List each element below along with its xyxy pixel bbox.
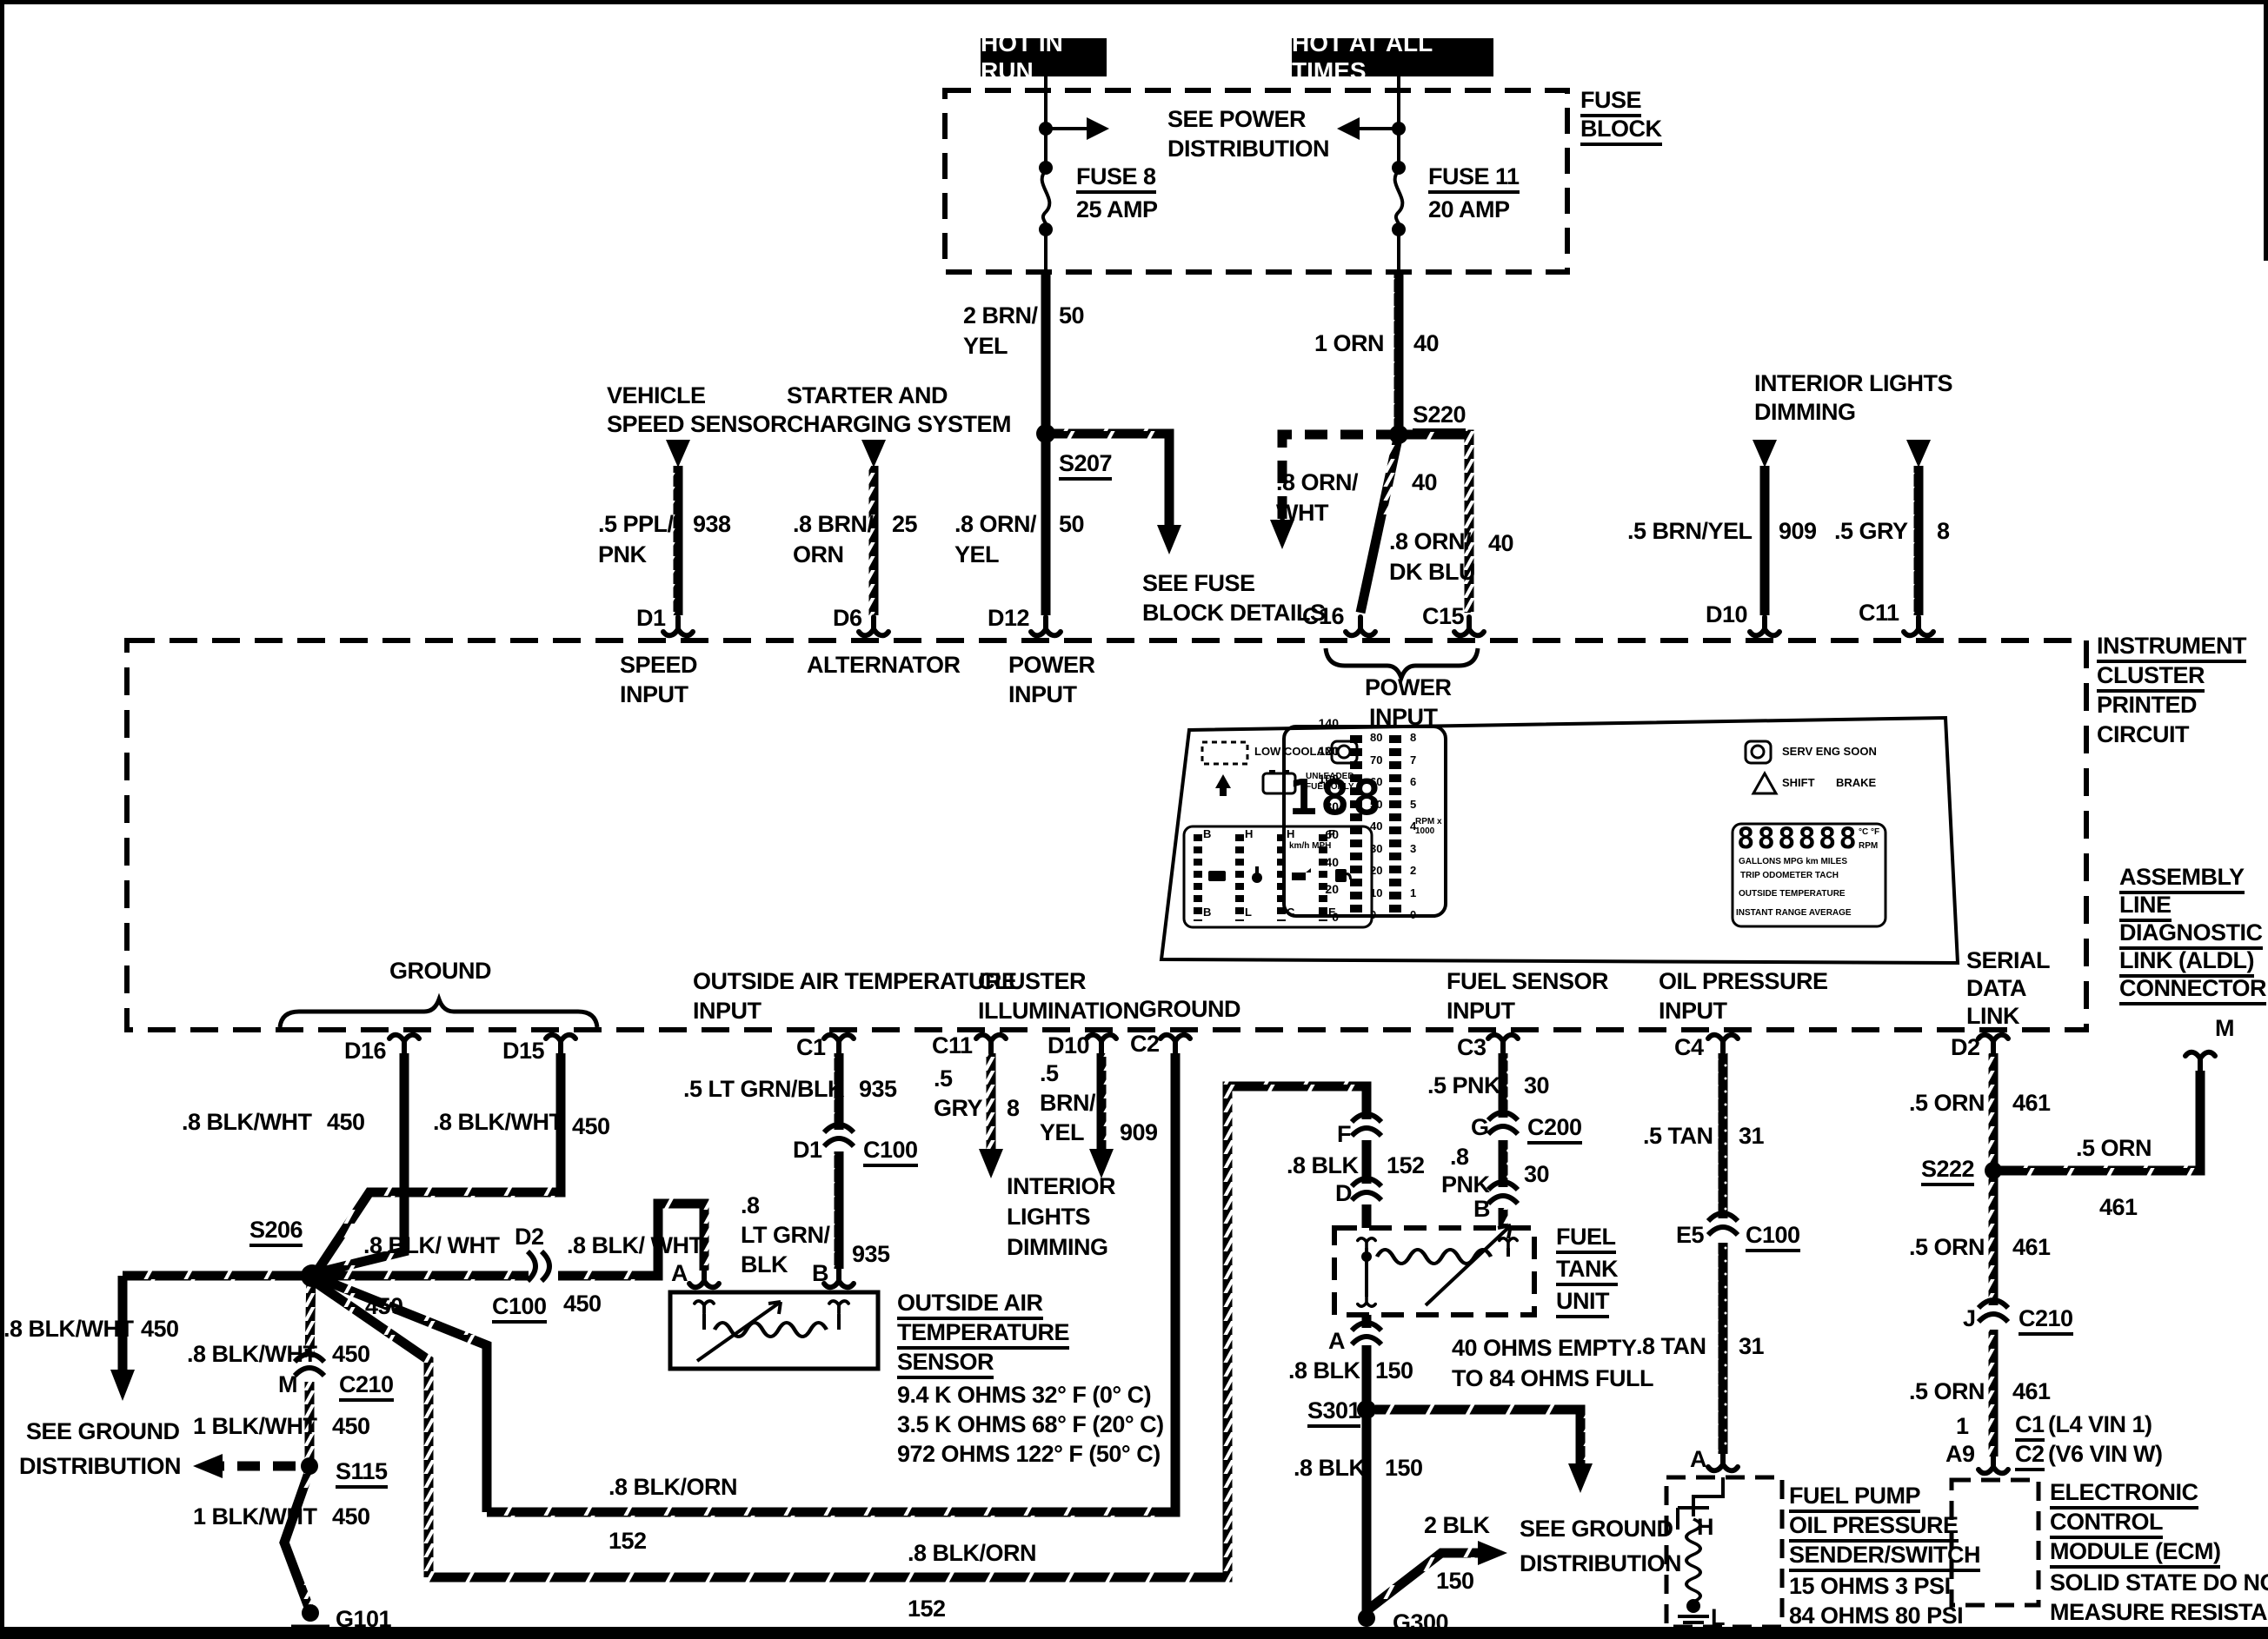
shift-label: SHIFT [1782, 777, 1815, 790]
odo-row1: GALLONS MPG km MILES [1739, 857, 1847, 866]
wire-5by-b1: .5 [1040, 1060, 1059, 1086]
oat-sensor-4: 9.4 K OHMS 32° F (0° C) [897, 1382, 1151, 1408]
power-input-brace [1326, 648, 1478, 678]
splice-s222 [1985, 1162, 2002, 1179]
hot-at-all-times-banner: HOT AT ALL TIMES [1292, 38, 1493, 76]
wire-8ornyel-2: YEL [954, 541, 999, 567]
oat-input-1: OUTSIDE AIR TEMPERATURE [693, 968, 1017, 994]
wire-1blk-b-num: 450 [332, 1503, 370, 1530]
conn-d16: D16 [344, 1038, 386, 1064]
power-input-2a: POWER [1365, 674, 1452, 700]
conn-c15: C15 [1422, 603, 1464, 629]
rpm-x1000-label: RPM x 1000 [1415, 817, 1447, 836]
ecm-4: SOLID STATE DO NOT [2050, 1569, 2268, 1596]
wire-5gry-b2: GRY [934, 1095, 982, 1121]
serv-eng-soon-label: SERV ENG SOON [1782, 746, 1877, 759]
kmh-scale-6: 20 [1300, 882, 1339, 896]
kmh-scale-5: 40 [1300, 855, 1339, 869]
wire-8tan: .8 TAN [1636, 1333, 1706, 1359]
term-e5: E5 [1676, 1222, 1704, 1248]
alternator-label: ALTERNATOR [807, 652, 961, 678]
speed-input-2: INPUT [620, 681, 688, 707]
oat-input-2: INPUT [693, 998, 762, 1024]
wire-1blk-a: 1 BLK/WHT [193, 1413, 316, 1439]
wire-5orn-m-num: 461 [2099, 1194, 2138, 1220]
wire-5orn-c: .5 ORN [1909, 1378, 1985, 1404]
wire-8orndkblu-1: .8 ORN/ [1389, 528, 1471, 554]
wire-450-d15-num: 450 [572, 1113, 610, 1139]
wire-2blk-num: 150 [1436, 1568, 1474, 1594]
wire-blkorn-2: .8 BLK/ORN [908, 1540, 1036, 1566]
oil-pressure-input-1: OIL PRESSURE [1659, 968, 1828, 994]
see-power-2: DISTRIBUTION [1167, 136, 1329, 162]
conn-d2a: D2 [515, 1224, 544, 1250]
sdl-2: DATA [1966, 975, 2026, 1001]
kmh-scale-0: 140 [1300, 716, 1339, 730]
splice-s207-label: S207 [1059, 450, 1112, 481]
cluster-illum-1: CLUSTER [978, 968, 1086, 994]
arrow-left-icon [193, 1454, 223, 1478]
fuse11-label: FUSE 11 [1428, 163, 1520, 194]
see-ground-1b: DISTRIBUTION [19, 1453, 181, 1479]
arrow-left-icon [1337, 117, 1360, 140]
wire-blkorn-2-num: 152 [908, 1596, 946, 1622]
wire-8ornwht-2: WHT [1276, 500, 1328, 526]
mph-scale-2: 60 [1370, 775, 1382, 788]
wire-1blk-a-num: 450 [332, 1413, 370, 1439]
conn-d2-sdl: D2 [1951, 1034, 1980, 1060]
ecm-c2: C2 [2015, 1441, 2045, 1471]
fuel-pump-1: FUEL PUMP [1789, 1483, 1920, 1513]
aldl-5: CONNECTOR [2119, 975, 2266, 1005]
see-fuse-1: SEE FUSE [1142, 570, 1255, 596]
arrow-down-icon [1906, 440, 1931, 468]
aldl-1: ASSEMBLY [2119, 864, 2245, 894]
speedo-units: km/h MPH [1289, 841, 1331, 851]
ecm-c1-suffix: (L4 VIN 1) [2048, 1411, 2152, 1437]
wire-5pplpnk-num: 938 [693, 511, 731, 537]
wire-5gry-b1: .5 [934, 1065, 953, 1092]
wire-8orndkblu-num: 40 [1488, 530, 1513, 556]
ground-brace [280, 999, 597, 1027]
wire-8brnorn-2: ORN [793, 541, 844, 567]
shift-icon [1753, 773, 1776, 793]
wire-8pnk-num: 30 [1524, 1161, 1549, 1187]
wire-5by-b3: YEL [1040, 1119, 1084, 1145]
oat-sensor-3: SENSOR [897, 1349, 994, 1379]
instr-cluster-1: INSTRUMENT [2097, 633, 2246, 663]
oat-sensor-5: 3.5 K OHMS 68° F (20° C) [897, 1411, 1164, 1437]
wire-5by-b-num: 909 [1120, 1119, 1158, 1145]
conn-c100a: C100 [492, 1293, 547, 1324]
arrow-down-icon [979, 1149, 1003, 1178]
mph-scale-0: 80 [1370, 731, 1382, 744]
wire-5pplpnk-1: .5 PPL/ [598, 511, 674, 537]
ecm-3: MODULE (ECM) [2050, 1538, 2220, 1569]
wire-935b-num: 935 [852, 1241, 890, 1267]
wire-5brnyel-top-num: 909 [1779, 518, 1817, 544]
term-m-aldl: M [2215, 1015, 2234, 1041]
wire-8brnorn-1: .8 BRN/ [793, 511, 874, 537]
odo-digits: 888888 [1737, 822, 1859, 855]
mph-scale-3: 50 [1370, 798, 1382, 811]
arrow-down-icon [1157, 525, 1181, 554]
wire-8ornyel-1: .8 ORN/ [954, 511, 1036, 537]
wire-5orn-a: .5 ORN [1909, 1090, 1985, 1116]
fuel-gauge-icon [1335, 869, 1347, 882]
wire-450-left: .8 BLK/WHT [3, 1316, 134, 1342]
ftu-label-3: UNIT [1556, 1288, 1609, 1318]
ohms-2: TO 84 OHMS FULL [1452, 1365, 1653, 1391]
arrow-right-icon [1087, 117, 1109, 140]
wire-450-d16: .8 BLK/WHT [182, 1109, 312, 1135]
tach-scale-6: 2 [1410, 864, 1416, 877]
ground-label: GROUND [389, 958, 491, 984]
aldl-2: LINE [2119, 892, 2172, 922]
wire-450-d16-num: 450 [327, 1109, 365, 1135]
wiring-diagram-page: HOT IN RUN HOT AT ALL TIMES FUSE BLOCK S… [0, 0, 2268, 1639]
term-f: F [1337, 1121, 1351, 1147]
gauge-letters-top-0: B [1203, 827, 1211, 840]
term-1: 1 [1956, 1413, 1969, 1439]
fuel-pump-2: OIL PRESSURE [1789, 1512, 1959, 1543]
see-power-1: SEE POWER [1167, 106, 1306, 132]
wire-935b-2: LT GRN/ [741, 1222, 829, 1248]
oil-gauge-icon [1292, 868, 1311, 880]
mph-scale-6: 20 [1370, 864, 1382, 877]
conn-c16: C16 [1302, 603, 1344, 629]
ftu-label-1: FUEL [1556, 1224, 1616, 1254]
mph-scale-5: 30 [1370, 842, 1382, 855]
vss-label-1: VEHICLE [607, 382, 706, 408]
conn-c210a: C210 [339, 1371, 394, 1402]
wire-8ornwht-num: 40 [1412, 469, 1437, 495]
arrow-down-icon [1568, 1463, 1593, 1493]
power-input-1a: POWER [1008, 652, 1095, 678]
arrow-down-icon [666, 440, 690, 468]
see-ground-2a: SEE GROUND [1520, 1516, 1673, 1542]
term-b-ftu: B [1473, 1196, 1490, 1222]
conn-c100b: C100 [863, 1137, 918, 1167]
wire-2blk: 2 BLK [1424, 1512, 1490, 1538]
starter-label-2: CHARGING SYSTEM [787, 411, 1011, 437]
rpm-unit: RPM [1859, 841, 1878, 851]
tach-scale-7: 1 [1410, 886, 1416, 899]
arrow-down-icon [861, 440, 886, 468]
wire-5pplpnk-2: PNK [598, 541, 647, 567]
wire-2brnyel-1: 2 BRN/ [963, 302, 1038, 328]
kmh-scale-3: 80 [1300, 800, 1339, 813]
mph-scale-7: 10 [1370, 886, 1382, 899]
brake-label: BRAKE [1836, 777, 1876, 790]
kmh-scale-2: 100 [1300, 772, 1339, 786]
fuse8-amp: 25 AMP [1076, 196, 1158, 222]
instr-cluster-3: PRINTED [2097, 692, 2197, 718]
conn-c11-top: C11 [1859, 600, 1899, 626]
conn-c200: C200 [1527, 1114, 1582, 1145]
term-m: M [278, 1371, 297, 1397]
odo-row2: TRIP ODOMETER TACH [1740, 871, 1839, 880]
fuel-pump-3: SENDER/SWITCH [1789, 1542, 1980, 1572]
wire-450-m: .8 BLK/WHT [187, 1341, 317, 1367]
ground2-label: GROUND [1139, 996, 1240, 1022]
fuel-pump-4: 15 OHMS 3 PSI [1789, 1573, 1951, 1599]
term-h: H [1697, 1514, 1713, 1540]
wire-5gry-top-num: 8 [1937, 518, 1950, 544]
oat-sensor-1: OUTSIDE AIR [897, 1290, 1043, 1320]
battery-gauge-icon [1208, 871, 1226, 881]
term-l: L [1711, 1604, 1725, 1630]
wire-450-dot-num: 450 [365, 1293, 403, 1319]
wire-8pnk-2: PNK [1441, 1171, 1490, 1198]
term-b-oat: B [812, 1260, 828, 1286]
sdl-3: LINK [1966, 1003, 2019, 1029]
wire-8blk150a: .8 BLK [1288, 1357, 1360, 1384]
ecm-c2-suffix: (V6 VIN W) [2048, 1441, 2163, 1467]
term-a-fp: A [1690, 1446, 1706, 1472]
wire-5by-b2: BRN/ [1040, 1090, 1095, 1116]
gauge-letters-top-1: H [1245, 827, 1253, 840]
gauge-letters-top-3: F [1328, 827, 1335, 840]
fuse-block-label-1: FUSE [1580, 87, 1641, 117]
wire-935b-1: .8 [741, 1192, 760, 1218]
wire-8ornwht-1: .8 ORN/ [1276, 469, 1358, 495]
wire-935b-3: BLK [741, 1251, 788, 1277]
see-ground-1a: SEE GROUND [26, 1418, 180, 1444]
gauge-letters-top-2: H [1287, 827, 1294, 840]
mph-scale-8: 0 [1370, 908, 1376, 921]
conn-c4: C4 [1674, 1034, 1704, 1060]
wire-1blk-b: 1 BLK/WHT [193, 1503, 316, 1530]
wire-1orn: 1 ORN [1314, 330, 1384, 356]
wire-2brnyel-2: YEL [963, 333, 1008, 359]
wire-5gry-b-num: 8 [1007, 1095, 1020, 1121]
wire-8brnorn-num: 25 [892, 511, 917, 537]
arrow-down-icon [1753, 440, 1777, 468]
conn-d1: D1 [636, 605, 666, 631]
splice-s207 [1036, 424, 1055, 443]
splice-s301-label: S301 [1307, 1397, 1360, 1428]
tach-scale-4: 4 [1410, 819, 1416, 833]
wire-5pnk: .5 PNK [1427, 1072, 1500, 1098]
conn-d10-top: D10 [1706, 601, 1747, 627]
splice-s206 [301, 1264, 323, 1287]
wire-450-m-num: 450 [332, 1341, 370, 1367]
arrow-right-icon [1478, 1541, 1507, 1565]
wire-5orn-a-num: 461 [2012, 1090, 2051, 1116]
low-coolant-box [1202, 742, 1247, 764]
tach-scale-3: 5 [1410, 798, 1416, 811]
wire-8pnk-1: .8 [1450, 1144, 1469, 1170]
ecm-2: CONTROL [2050, 1509, 2163, 1539]
wire-8blk150b-num: 150 [1385, 1455, 1423, 1481]
term-j: J [1963, 1305, 1976, 1331]
splice-s222-label: S222 [1921, 1156, 1974, 1186]
tach-scale-2: 6 [1410, 775, 1416, 788]
interior-lights-top-1: INTERIOR LIGHTS [1754, 370, 1952, 396]
wire-5tan: .5 TAN [1643, 1123, 1713, 1149]
ecm-5: MEASURE RESISTANCE [2050, 1599, 2268, 1625]
wire-5orn-b-num: 461 [2012, 1234, 2051, 1260]
conn-d1-c100: D1 [793, 1137, 822, 1163]
wire-5tan-num: 31 [1739, 1123, 1764, 1149]
cf-units: °C °F [1859, 827, 1879, 837]
mph-scale-1: 70 [1370, 753, 1382, 766]
ground-g300-label: G300 [1393, 1609, 1448, 1639]
splice-s206-label: S206 [249, 1217, 303, 1247]
wire-1orn-num: 40 [1413, 330, 1439, 356]
fuel-sensor-input-2: INPUT [1447, 998, 1515, 1024]
ftu-label-2: TANK [1556, 1256, 1618, 1286]
wire-450-s206r2: .8 BLK/ WHT [567, 1232, 703, 1258]
term-a9: A9 [1945, 1441, 1975, 1467]
tach-scale-0: 8 [1410, 731, 1416, 744]
wire-8orndkblu-2: DK BLU [1389, 559, 1475, 585]
aldl-3: DIAGNOSTIC [2119, 919, 2263, 950]
conn-c1: C1 [796, 1034, 826, 1060]
splice-s220 [1389, 425, 1408, 444]
cluster-illum-2: ILLUMINATION [978, 998, 1139, 1024]
conn-c2: C2 [1130, 1031, 1160, 1057]
wire-8blk150b: .8 BLK [1294, 1455, 1366, 1481]
arrow-down-icon [110, 1370, 135, 1401]
term-a-oat: A [671, 1260, 688, 1286]
interior-lights-top-2: DIMMING [1754, 399, 1855, 425]
wire-blkorn-1: .8 BLK/ORN [609, 1474, 737, 1500]
wire-8blk152-num: 152 [1387, 1152, 1425, 1178]
conn-d15: D15 [502, 1038, 544, 1064]
wire-8tan-num: 31 [1739, 1333, 1764, 1359]
wire-935a: .5 LT GRN/BLK [683, 1076, 844, 1102]
up-arrow-icon [1215, 774, 1231, 796]
conn-c11-bottom: C11 [932, 1032, 973, 1058]
wire-8ornyel-num: 50 [1059, 511, 1084, 537]
conn-d12: D12 [988, 605, 1029, 631]
gauge-letters-bottom-1: L [1245, 906, 1252, 919]
odo-row4: INSTANT RANGE AVERAGE [1736, 908, 1852, 918]
ecm-c1: C1 [2015, 1411, 2045, 1442]
fuel-sensor-input-1: FUEL SENSOR [1447, 968, 1608, 994]
conn-c3: C3 [1457, 1034, 1487, 1060]
gauge-letters-bottom-3: E [1328, 906, 1336, 919]
wire-2brnyel-num: 50 [1059, 302, 1084, 328]
wire-935a-num: 935 [859, 1076, 897, 1102]
wire-5orn-c-num: 461 [2012, 1378, 2051, 1404]
wire-5gry-top: .5 GRY [1834, 518, 1908, 544]
ecm-1: ELECTRONIC [2050, 1479, 2198, 1510]
tach-scale-1: 7 [1410, 753, 1416, 766]
hot-in-run-banner: HOT IN RUN [981, 38, 1107, 76]
mph-scale-4: 40 [1370, 819, 1382, 833]
aldl-4: LINK (ALDL) [2119, 947, 2254, 978]
instr-cluster-2: CLUSTER [2097, 662, 2205, 693]
outside-air-temp-sensor [670, 1292, 878, 1369]
splice-s115-label: S115 [336, 1458, 388, 1489]
see-fuse-2: BLOCK DETAILS [1142, 600, 1326, 626]
power-input-1b: INPUT [1008, 681, 1077, 707]
oat-sensor-6: 972 OHMS 122° F (50° C) [897, 1441, 1161, 1467]
fuel-tank-unit-internals [1358, 1225, 1517, 1306]
wire-450-left-num: 450 [141, 1316, 179, 1342]
term-g: G [1471, 1114, 1489, 1140]
wire-8blk152: .8 BLK [1287, 1152, 1359, 1178]
wire-blkorn-1-num: 152 [609, 1528, 647, 1554]
wire-5orn-m: .5 ORN [2076, 1135, 2152, 1161]
wire-450-s206r: .8 BLK/ WHT [363, 1232, 500, 1258]
conn-c210b: C210 [2019, 1305, 2073, 1336]
tach-scale-5: 3 [1410, 842, 1416, 855]
ground-g101-label: G101 [336, 1606, 391, 1636]
wire-5orn-b: .5 ORN [1909, 1234, 1985, 1260]
conn-d6: D6 [833, 605, 862, 631]
see-ground-2b: DISTRIBUTION [1520, 1550, 1681, 1576]
conn-d10-bottom: D10 [1048, 1032, 1089, 1058]
ohms-1: 40 OHMS EMPTY [1452, 1335, 1637, 1361]
starter-label-1: STARTER AND [787, 382, 948, 408]
conn-c100a-num: 450 [563, 1291, 602, 1317]
kmh-scale-1: 120 [1300, 744, 1339, 758]
gauge-letters-bottom-2: C [1287, 906, 1294, 919]
fuel-pump-5: 84 OHMS 80 PSI [1789, 1603, 1963, 1629]
wire-8blk150a-num: 150 [1375, 1357, 1413, 1384]
fuse8-label: FUSE 8 [1076, 163, 1156, 194]
conn-c100c: C100 [1746, 1222, 1800, 1252]
wire-5pnk-num: 30 [1524, 1072, 1549, 1098]
term-d: D [1335, 1180, 1352, 1206]
sdl-1: SERIAL [1966, 947, 2050, 973]
interior-lights-b3: DIMMING [1007, 1234, 1107, 1260]
instr-cluster-4: CIRCUIT [2097, 721, 2189, 747]
splice-s220-label: S220 [1413, 401, 1466, 432]
wire-5brnyel-top: .5 BRN/YEL [1627, 518, 1753, 544]
vss-label-2: SPEED SENSOR [607, 411, 787, 437]
interior-lights-b2: LIGHTS [1007, 1204, 1090, 1230]
oil-pressure-input-2: INPUT [1659, 998, 1727, 1024]
oat-sensor-2: TEMPERATURE [897, 1319, 1069, 1350]
splice-s115 [301, 1457, 318, 1475]
wire-450-d15: .8 BLK/WHT [433, 1109, 563, 1135]
power-input-2b: INPUT [1369, 704, 1438, 730]
fuse11-amp: 20 AMP [1428, 196, 1510, 222]
tach-scale-8: 0 [1410, 908, 1416, 921]
gauge-letters-bottom-0: B [1203, 906, 1211, 919]
odo-row3: OUTSIDE TEMPERATURE [1739, 889, 1846, 899]
term-a-ftu: A [1328, 1328, 1345, 1354]
speed-input-1: SPEED [620, 652, 697, 678]
interior-lights-b1: INTERIOR [1007, 1173, 1115, 1199]
fuse-block-label-2: BLOCK [1580, 116, 1662, 146]
